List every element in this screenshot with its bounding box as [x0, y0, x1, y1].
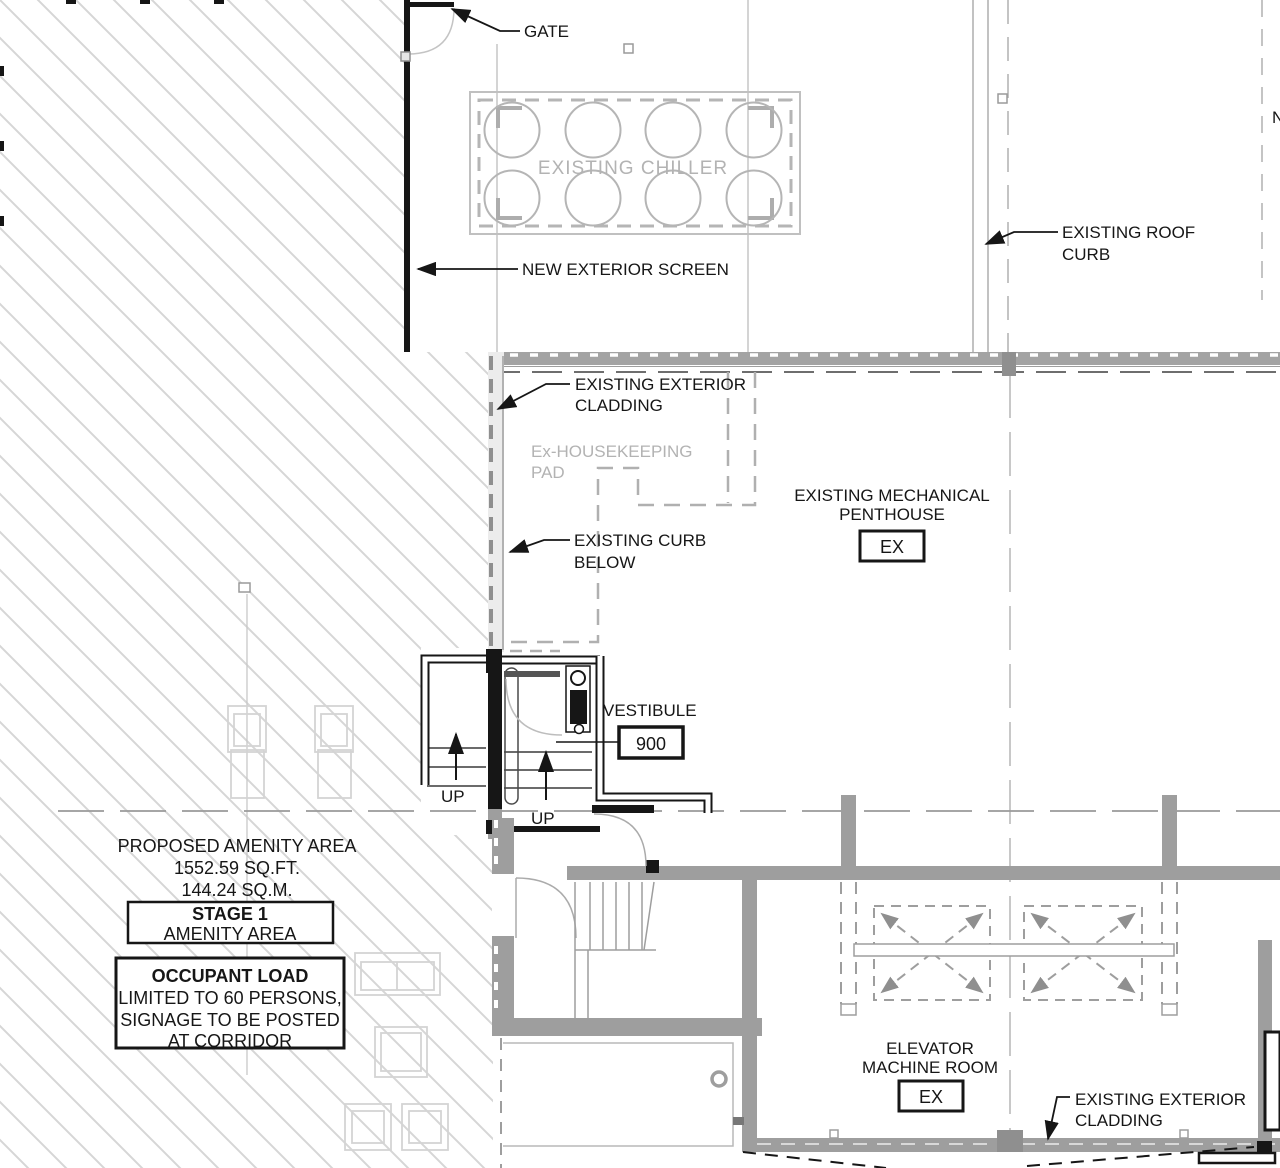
existing-chiller-label: EXISTING CHILLER	[538, 158, 728, 179]
cladding-top-leader	[498, 384, 570, 409]
cladding-top-label-1: EXISTING EXTERIOR	[575, 375, 746, 394]
amenity-area-label-1: PROPOSED AMENITY AREA	[118, 836, 357, 856]
door-swing	[594, 814, 646, 866]
occupant-label-1: OCCUPANT LOAD	[152, 966, 309, 986]
floor-plan-drawing: GATE EXISTING CHILLER NEW EXTERIOR SCREE…	[0, 0, 1280, 1168]
occupant-label-2: LIMITED TO 60 PERSONS,	[118, 988, 341, 1008]
penthouse-label-2: PENTHOUSE	[839, 505, 945, 524]
wall-column	[997, 1130, 1023, 1152]
vestibule-tag-text: 900	[636, 734, 666, 754]
cladding-top-label-2: CLADDING	[575, 396, 663, 415]
stair-divider-wall	[488, 672, 502, 809]
door-swing-dashed	[743, 1152, 886, 1168]
curb-below-leader	[510, 540, 570, 552]
gate-label: GATE	[524, 22, 569, 41]
elevator-tag-text: EX	[919, 1087, 943, 1107]
curb-below-label-2: BELOW	[574, 553, 635, 572]
gate-wall	[404, 2, 454, 7]
gate-leader	[452, 9, 520, 31]
occupant-label-3: SIGNAGE TO BE POSTED	[120, 1010, 339, 1030]
wall-column	[486, 649, 502, 673]
amenity-area-label-2: 1552.59 SQ.FT.	[174, 858, 300, 878]
housekeeping-pad-label-2: PAD	[531, 463, 565, 482]
door-leaf	[1199, 1153, 1275, 1163]
cladding-bottom-label-1: EXISTING EXTERIOR	[1075, 1090, 1246, 1109]
elevator-room-label-1: ELEVATOR	[886, 1039, 974, 1058]
stage-label-1: STAGE 1	[192, 904, 268, 924]
clipped-label: N	[1272, 108, 1280, 127]
occupant-label-4: AT CORRIDOR	[168, 1031, 292, 1051]
up-label-left: UP	[441, 787, 465, 806]
curb-below-label-1: EXISTING CURB	[574, 531, 706, 550]
cladding-bottom-leader	[1048, 1097, 1070, 1139]
amenity-area-label-3: 144.24 SQ.M.	[181, 880, 292, 900]
roof-curb-label-1: EXISTING ROOF	[1062, 223, 1195, 242]
penthouse-label-1: EXISTING MECHANICAL	[794, 486, 990, 505]
existing-stair	[575, 882, 656, 1018]
elevator-shafts	[841, 795, 1177, 1015]
new-exterior-screen-label: NEW EXTERIOR SCREEN	[522, 260, 729, 279]
elevator-room-label-2: MACHINE ROOM	[862, 1058, 998, 1077]
ref-square	[239, 583, 250, 592]
penthouse-tag-text: EX	[880, 537, 904, 557]
stage-label-2: AMENITY AREA	[164, 924, 297, 944]
vestibule-closet	[566, 666, 590, 734]
ref-square	[624, 44, 633, 53]
vestibule-label: VESTIBULE	[603, 701, 697, 720]
roof-curb-label-2: CURB	[1062, 245, 1110, 264]
door-swing	[516, 878, 576, 938]
stair-treads-right	[504, 752, 592, 788]
up-label-right: UP	[531, 809, 555, 828]
vestibule-door-swing	[506, 679, 562, 735]
wall-column	[841, 795, 856, 866]
floor-plan-sheet: GATE EXISTING CHILLER NEW EXTERIOR SCREE…	[0, 0, 1280, 1168]
wall-column	[1162, 795, 1177, 866]
new-exterior-screen-wall	[401, 0, 454, 352]
ref-square	[998, 94, 1007, 103]
housekeeping-pad-label-1: Ex-HOUSEKEEPING	[531, 442, 693, 461]
door-frame	[1265, 1032, 1280, 1130]
divider-beam	[854, 944, 1174, 956]
fixture-circle	[571, 671, 585, 685]
equipment-black	[570, 690, 587, 724]
gate-hinge	[401, 52, 410, 61]
wall-column	[1002, 352, 1016, 376]
gate-door-swing	[408, 8, 454, 54]
vestibule-door-leaf	[504, 671, 560, 677]
roof-curb-leader	[986, 232, 1058, 244]
cladding-bottom-label-2: CLADDING	[1075, 1111, 1163, 1130]
floor-drain	[712, 1072, 726, 1086]
door-hardware	[646, 860, 659, 873]
